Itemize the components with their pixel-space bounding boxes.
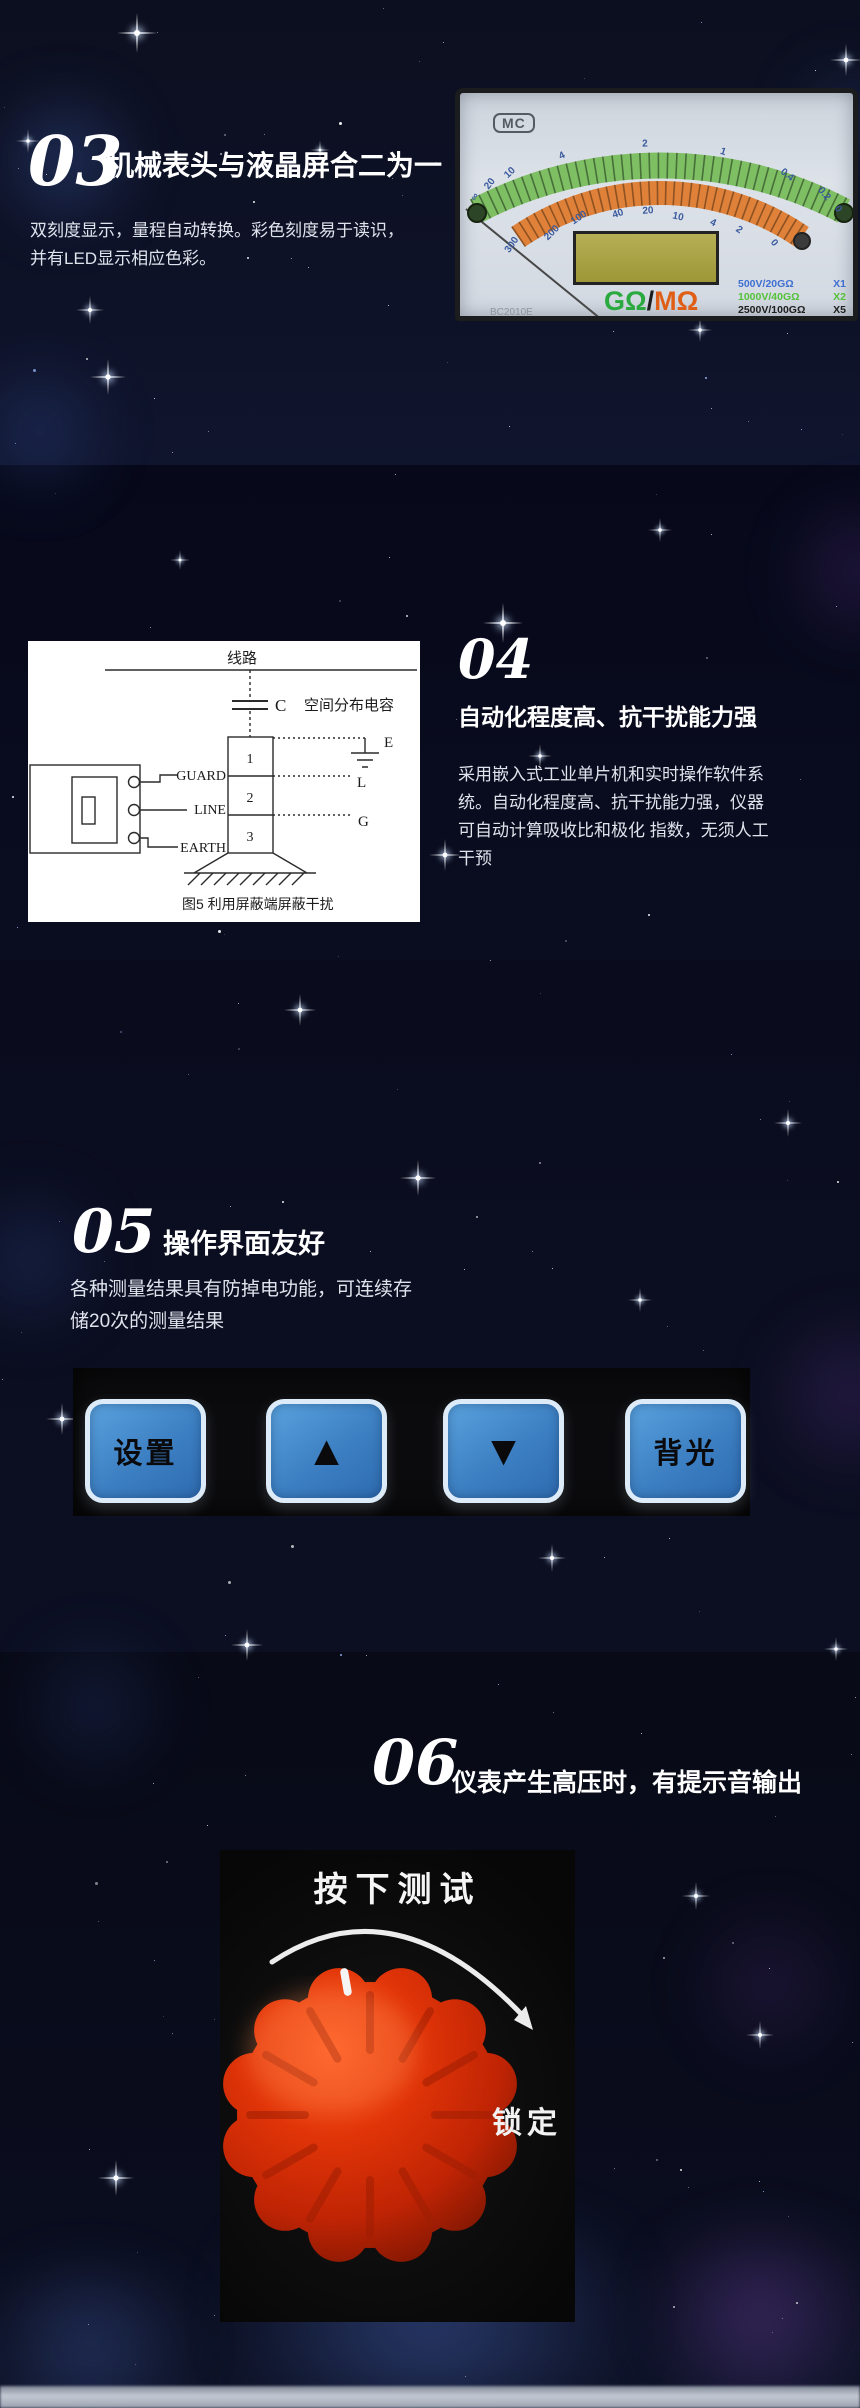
settings-button: 设置	[85, 1399, 206, 1503]
red-knob	[223, 1968, 517, 2262]
earth-symbol	[351, 738, 379, 767]
section-03-body-line: 双刻度显示，量程自动转换。彩色刻度易于读识，	[30, 216, 404, 241]
svg-text:C: C	[275, 696, 286, 715]
section-06-title: 仪表产生高压时，有提示音输出	[452, 1763, 802, 1799]
unit-label: GΩ/MΩ	[604, 286, 698, 317]
mohm-label: MΩ	[654, 286, 698, 316]
svg-text:LINE: LINE	[194, 803, 226, 818]
wiring-diagram-svg: 线路 C 空间分布电容 GUARD LINE EARTH 1 2 3 E L G…	[28, 641, 420, 922]
section-04-number: 04	[458, 632, 533, 686]
svg-text:3: 3	[247, 830, 254, 845]
instrument-box	[30, 765, 140, 853]
scale-label: 20	[642, 205, 654, 217]
section-05-title: 操作界面友好	[163, 1222, 325, 1261]
lcd-display	[573, 231, 719, 285]
backlight-button: 背光	[625, 1399, 746, 1503]
meter-zero-adjust	[794, 233, 810, 249]
section-03-body-line: 并有LED显示相应色彩。	[30, 244, 216, 269]
page: 03 机械表头与液晶屏合二为一 双刻度显示，量程自动转换。彩色刻度易于读识， 并…	[0, 0, 860, 2408]
ground-hatch	[188, 873, 304, 885]
up-arrow-icon: ▲	[306, 1430, 348, 1472]
section-05-number: 05	[72, 1202, 156, 1262]
svg-text:1: 1	[247, 752, 254, 767]
svg-text:空间分布电容: 空间分布电容	[304, 697, 394, 714]
press-to-test-label: 按下测试	[220, 1862, 575, 1911]
section-04-body-line: 可自动计算吸收比和极化 指数，无须人工	[458, 816, 769, 841]
range-row: 500V/20GΩX1	[738, 278, 846, 291]
meter-bottom-label: 4GΩ-4000MΩ	[595, 319, 677, 321]
scale-label: 2	[642, 138, 648, 149]
terminal-circle	[129, 805, 140, 816]
down-arrow-icon: ▼	[483, 1430, 525, 1472]
svg-text:L: L	[357, 775, 366, 791]
range-row: 2500V/100GΩX5	[738, 304, 846, 317]
gohm-label: GΩ	[604, 286, 647, 316]
section-04-body-line: 采用嵌入式工业单片机和实时操作软件系	[458, 760, 764, 785]
section-06-number: 06	[372, 1732, 458, 1794]
backlight-button-label: 背光	[653, 1430, 717, 1472]
down-button: ▼	[443, 1399, 564, 1503]
svg-text:GUARD: GUARD	[176, 769, 226, 784]
svg-text:线路: 线路	[227, 650, 257, 667]
bottom-horizon-band	[0, 2386, 860, 2408]
section-05-body-line: 各种测量结果具有防掉电功能，可连续存	[70, 1274, 412, 1301]
range-row: 5000V/200GΩX10	[738, 317, 846, 321]
ground-legs	[184, 853, 316, 873]
keypad-photo: 设置 ▲ ▼ 背光	[73, 1368, 750, 1516]
section-05-body-line: 储20次的测量结果	[70, 1306, 224, 1333]
range-row: 1000V/40GΩX2	[738, 291, 846, 304]
up-button: ▲	[266, 1399, 387, 1503]
svg-text:EARTH: EARTH	[180, 841, 226, 856]
diagram-caption: 图5 利用屏蔽端屏蔽干扰	[182, 896, 334, 912]
section-04-body-line: 统。自动化程度高、抗干扰能力强，仪器	[458, 788, 764, 813]
scale-label: 10	[671, 210, 684, 223]
terminal-circle	[129, 833, 140, 844]
wiring-diagram: 线路 C 空间分布电容 GUARD LINE EARTH 1 2 3 E L G…	[28, 641, 420, 922]
meter-screw-left	[468, 204, 486, 222]
lock-label: 锁定	[492, 2098, 562, 2142]
mc-logo: MC	[493, 113, 535, 133]
settings-button-label: 设置	[113, 1430, 177, 1472]
terminal-circle	[129, 777, 140, 788]
range-table: 500V/20GΩX1 1000V/40GΩX2 2500V/100GΩX5 5…	[738, 278, 846, 321]
knob-photo: 按下测试 锁定	[220, 1850, 575, 2322]
section-04-title: 自动化程度高、抗干扰能力强	[458, 698, 757, 732]
svg-text:2: 2	[247, 791, 254, 806]
section-03-title: 机械表头与液晶屏合二为一	[106, 144, 442, 184]
svg-text:E: E	[384, 735, 393, 751]
knob-svg	[220, 1850, 575, 2322]
meter-photo: MC ∞ 20 10 4 2 1 0.4 0.2 0 300 200 100 4…	[455, 88, 858, 321]
section-04-body-line: 干预	[458, 844, 492, 869]
svg-text:G: G	[358, 814, 369, 830]
model-number: BC2010E	[490, 307, 533, 318]
